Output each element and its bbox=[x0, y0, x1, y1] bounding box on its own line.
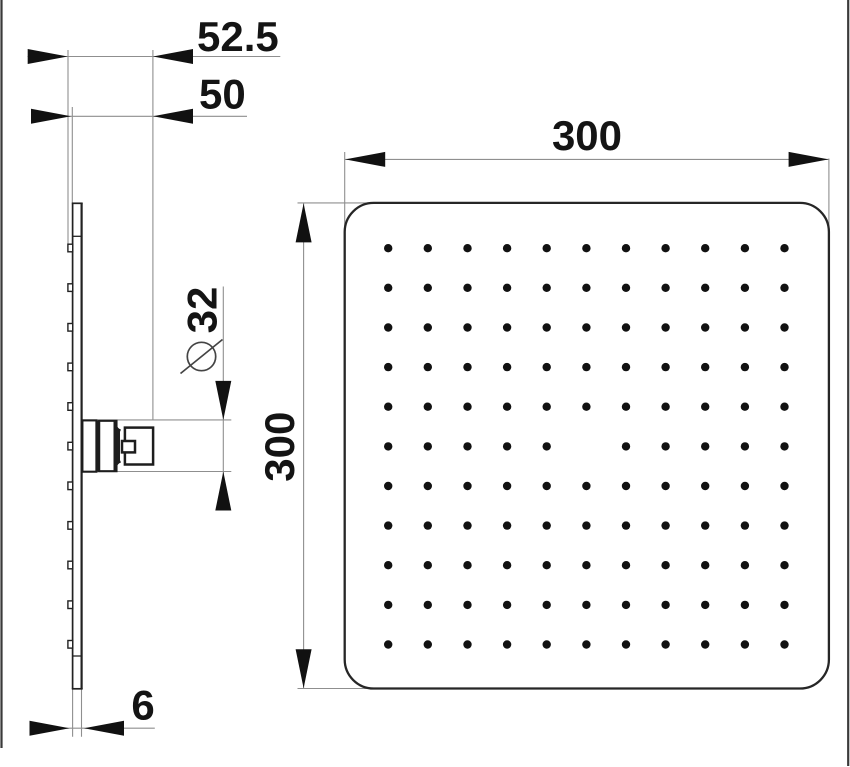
svg-text:32: 32 bbox=[179, 287, 226, 334]
svg-text:300: 300 bbox=[552, 112, 622, 159]
svg-text:50: 50 bbox=[199, 71, 246, 118]
svg-text:300: 300 bbox=[256, 412, 303, 482]
svg-text:52.5: 52.5 bbox=[197, 13, 279, 60]
svg-text:6: 6 bbox=[131, 682, 154, 729]
